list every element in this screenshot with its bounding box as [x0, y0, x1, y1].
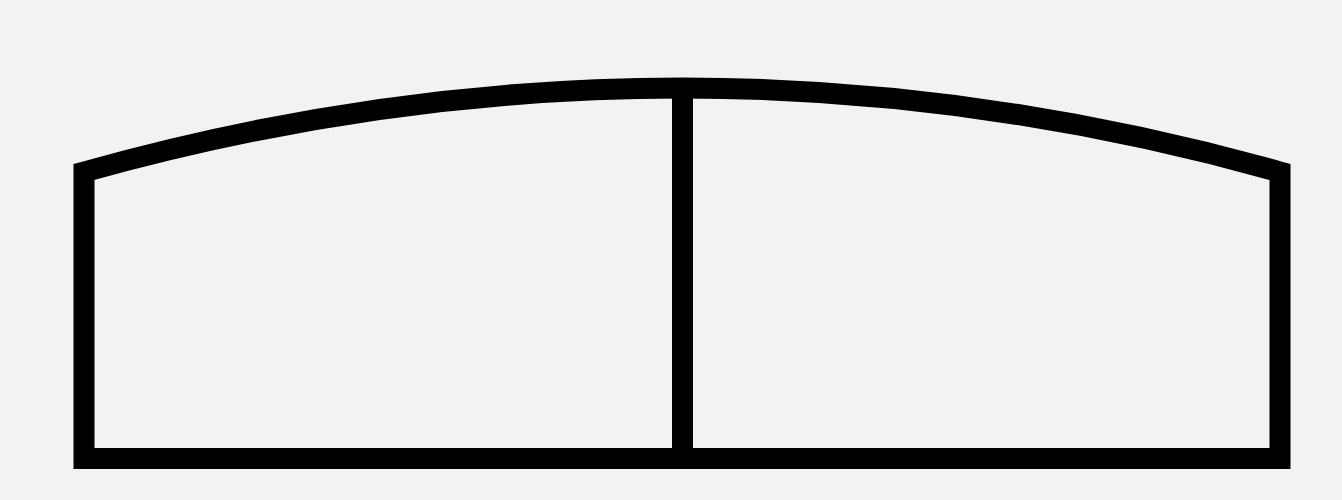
- canvas-background: [0, 0, 1342, 500]
- arched-two-panel-shape: [0, 0, 1342, 500]
- drawing-canvas: [0, 0, 1342, 500]
